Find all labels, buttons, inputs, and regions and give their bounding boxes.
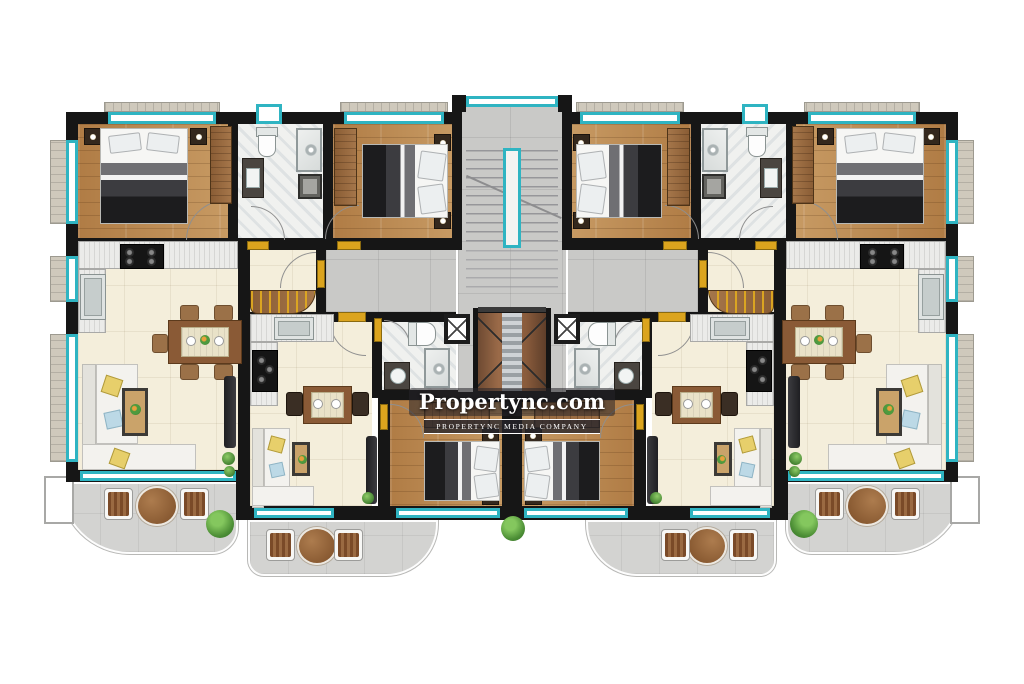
- stair-railing: [503, 148, 521, 248]
- watermark: Propertync.com PROPERTYNC MEDIA COMPANY: [402, 388, 622, 434]
- watermark-subtitle: PROPERTYNC MEDIA COMPANY: [424, 419, 600, 434]
- wall: [452, 112, 462, 250]
- stair-flight: [466, 250, 558, 294]
- elevator: [473, 308, 551, 396]
- floor-plan-stage: Propertync.com PROPERTYNC MEDIA COMPANY: [0, 0, 1024, 684]
- watermark-title: Propertync.com: [409, 388, 615, 416]
- wall: [558, 95, 572, 112]
- wall: [452, 95, 466, 112]
- bush: [501, 516, 525, 541]
- shaft: [444, 314, 470, 344]
- wall: [562, 112, 572, 250]
- center-core: Propertync.com PROPERTYNC MEDIA COMPANY: [0, 0, 1024, 684]
- stair-flight: [521, 150, 558, 246]
- stair-flight: [466, 150, 503, 246]
- shaft: [554, 314, 580, 344]
- window-stairwell: [466, 96, 558, 107]
